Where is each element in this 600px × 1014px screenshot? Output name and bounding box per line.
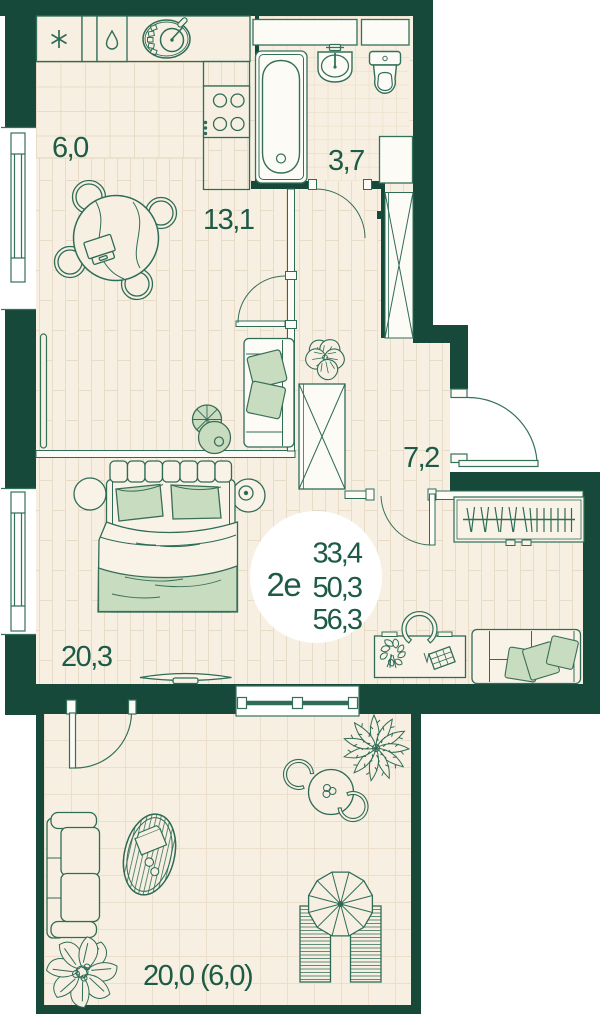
svg-text:33,4: 33,4 — [313, 538, 363, 570]
svg-text:20,0 (6,0): 20,0 (6,0) — [143, 960, 252, 992]
svg-text:3,7: 3,7 — [328, 145, 364, 177]
svg-text:20,3: 20,3 — [61, 641, 112, 673]
svg-text:2е: 2е — [267, 566, 301, 603]
svg-text:56,3: 56,3 — [313, 604, 362, 636]
svg-text:50,3: 50,3 — [313, 572, 362, 604]
svg-text:6,0: 6,0 — [52, 132, 88, 164]
svg-text:7,2: 7,2 — [403, 442, 439, 474]
svg-text:13,1: 13,1 — [203, 204, 254, 236]
